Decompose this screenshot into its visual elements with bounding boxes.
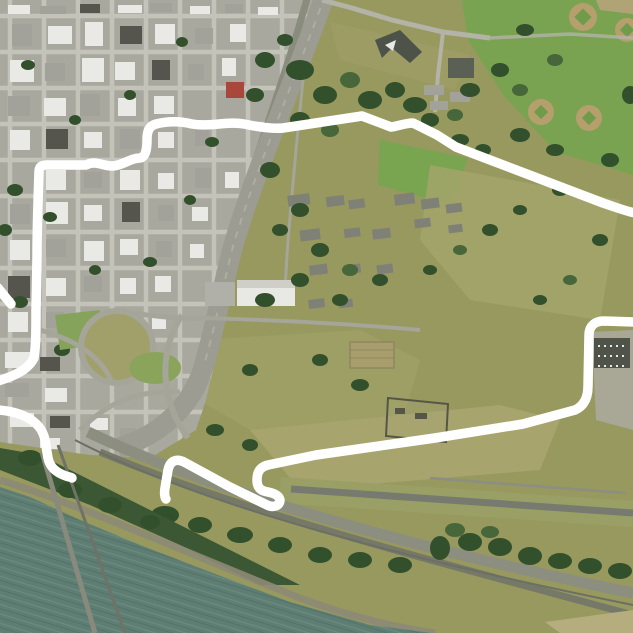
garden-plot [350, 342, 394, 368]
aerial-map [0, 0, 633, 633]
red-roof-building [226, 82, 244, 98]
parking-lot [205, 282, 235, 306]
hangar-building [594, 338, 630, 368]
aerial-map-viewport [0, 0, 633, 633]
